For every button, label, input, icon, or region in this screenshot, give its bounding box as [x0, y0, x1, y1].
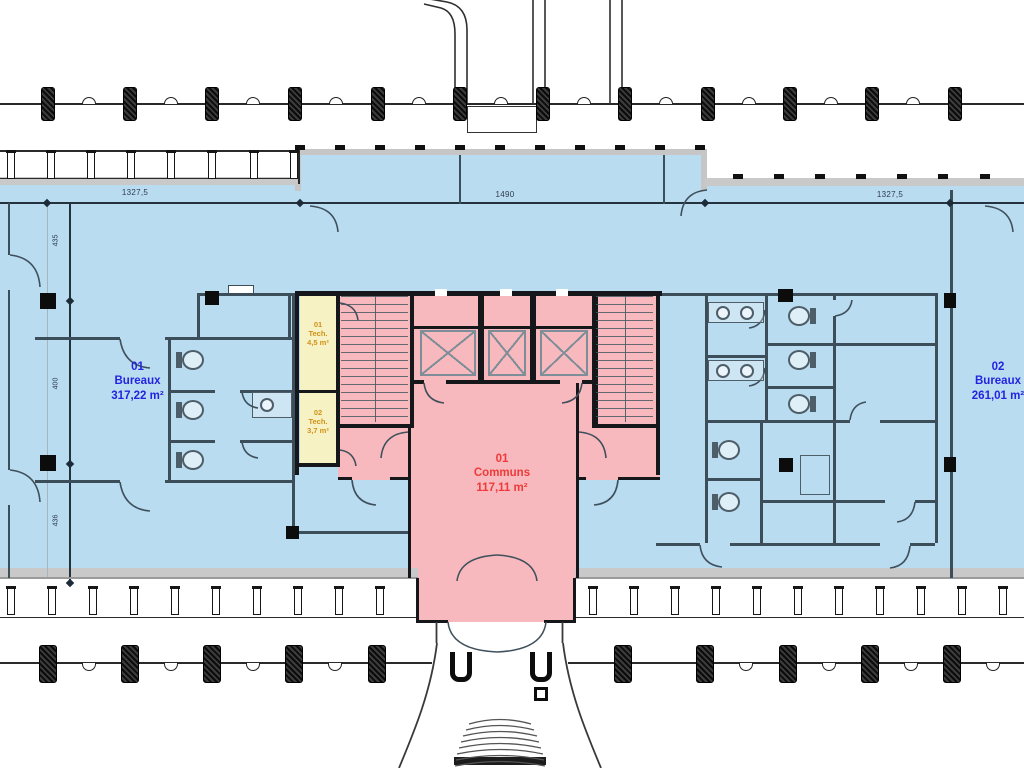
mullion — [167, 152, 175, 179]
toilet-tank — [810, 308, 816, 324]
mullion — [999, 588, 1007, 615]
room-label-tech2: 02 Tech. 3,7 m² — [294, 408, 342, 435]
facade-dash — [856, 174, 866, 179]
column — [288, 87, 302, 121]
sink-icon — [716, 364, 730, 378]
facade-dash — [774, 174, 784, 179]
entrance-canopy — [399, 622, 601, 768]
toilet-tank — [810, 396, 816, 412]
mullion — [335, 588, 343, 615]
facade-dash — [295, 145, 305, 150]
mullion — [376, 588, 384, 615]
vestibule-doors — [448, 555, 546, 652]
facade-dash — [535, 145, 545, 150]
room-code: 02 — [948, 360, 1024, 374]
toilet-bowl — [182, 400, 204, 420]
column — [536, 87, 550, 121]
toilet-bowl — [788, 394, 810, 414]
mullion — [250, 152, 258, 179]
mullion — [753, 588, 761, 615]
facade-dash — [575, 145, 585, 150]
mullion — [671, 588, 679, 615]
toilet-icon — [176, 450, 206, 470]
room-name: Communs — [438, 466, 566, 480]
line-bump — [577, 97, 591, 104]
toilet-icon — [712, 492, 742, 512]
facade-dash — [335, 145, 345, 150]
column — [948, 87, 962, 121]
mullion — [208, 152, 216, 179]
mullion — [87, 152, 95, 179]
sink-icon — [740, 306, 754, 320]
line-bump — [164, 97, 178, 104]
toilet-tank — [810, 352, 816, 368]
line-bump — [659, 97, 673, 104]
facade-dash — [495, 145, 505, 150]
column — [783, 87, 797, 121]
room-code: 02 — [294, 408, 342, 417]
room-area: 3,7 m² — [294, 426, 342, 435]
column — [205, 87, 219, 121]
column — [39, 645, 57, 683]
toilet-bowl — [788, 350, 810, 370]
toilet-icon — [176, 400, 206, 420]
column — [865, 87, 879, 121]
mullion — [127, 152, 135, 179]
room-area: 4,5 m² — [294, 338, 342, 347]
facade-dash — [655, 145, 665, 150]
column — [285, 645, 303, 683]
dimension-left-middle: 400 — [53, 369, 62, 399]
room-label-tech1: 01 Tech. 4,5 m² — [294, 320, 342, 347]
toilet-bowl — [718, 492, 740, 512]
toilet-icon — [786, 350, 816, 370]
line-bump — [906, 97, 920, 104]
column — [943, 645, 961, 683]
line-bump — [246, 97, 260, 104]
room-name: Bureaux — [80, 374, 195, 388]
room-area: 261,01 m² — [948, 389, 1024, 403]
mullion — [171, 588, 179, 615]
line-bump — [82, 97, 96, 104]
floor-plan-canvas: 01 Bureaux 317,22 m² 02 Bureaux 261,01 m… — [0, 0, 1024, 768]
toilet-bowl — [182, 450, 204, 470]
toilet-bowl — [788, 306, 810, 326]
facade-dash — [733, 174, 743, 179]
mullion — [589, 588, 597, 615]
column — [618, 87, 632, 121]
column — [779, 645, 797, 683]
column — [614, 645, 632, 683]
column — [368, 645, 386, 683]
mullion — [876, 588, 884, 615]
mullion — [7, 152, 15, 179]
sink-icon — [260, 398, 274, 412]
room-label-bureaux2: 02 Bureaux 261,01 m² — [948, 360, 1024, 403]
column — [453, 87, 467, 121]
mullion — [7, 588, 15, 615]
facade-dash — [695, 145, 705, 150]
facade-dash — [980, 174, 990, 179]
mullion — [794, 588, 802, 615]
sink-icon — [716, 306, 730, 320]
room-code: 01 — [294, 320, 342, 329]
room-label-communs: 01 Communs 117,11 m² — [438, 452, 566, 495]
mullion — [290, 152, 298, 179]
column — [203, 645, 221, 683]
sink-icon — [740, 364, 754, 378]
mullion — [835, 588, 843, 615]
room-name: Bureaux — [948, 374, 1024, 388]
column — [701, 87, 715, 121]
mullion — [294, 588, 302, 615]
mullion — [958, 588, 966, 615]
mullion — [253, 588, 261, 615]
dimension-top-left: 1327,5 — [95, 188, 175, 197]
mullion — [89, 588, 97, 615]
line-bump — [494, 97, 508, 104]
line-bump — [412, 97, 426, 104]
toilet-bowl — [718, 440, 740, 460]
facade-dash — [415, 145, 425, 150]
mullion — [47, 152, 55, 179]
mullion — [130, 588, 138, 615]
room-name: Tech. — [294, 417, 342, 426]
mullion — [712, 588, 720, 615]
column — [121, 645, 139, 683]
facade-dash — [455, 145, 465, 150]
column — [696, 645, 714, 683]
mullion — [630, 588, 638, 615]
facade-dash — [375, 145, 385, 150]
mullion — [212, 588, 220, 615]
toilet-icon — [712, 440, 742, 460]
dimension-left-bottom: 436 — [53, 506, 62, 536]
line-bump — [742, 97, 756, 104]
dimension-top-right: 1327,5 — [850, 190, 930, 199]
facade-dash — [615, 145, 625, 150]
facade-dash — [897, 174, 907, 179]
facade-dash — [938, 174, 948, 179]
dimension-left-top: 435 — [53, 226, 62, 256]
toilet-bowl — [182, 350, 204, 370]
dimension-top-center: 1490 — [465, 190, 545, 199]
room-code: 01 — [438, 452, 566, 466]
room-name: Tech. — [294, 329, 342, 338]
toilet-icon — [786, 306, 816, 326]
facade-dash — [815, 174, 825, 179]
mullion — [48, 588, 56, 615]
column — [861, 645, 879, 683]
mullion — [917, 588, 925, 615]
toilet-icon — [176, 350, 206, 370]
column — [41, 87, 55, 121]
toilet-icon — [786, 394, 816, 414]
line-bump — [824, 97, 838, 104]
column — [123, 87, 137, 121]
column — [371, 87, 385, 121]
room-area: 117,11 m² — [438, 481, 566, 495]
line-bump — [329, 97, 343, 104]
